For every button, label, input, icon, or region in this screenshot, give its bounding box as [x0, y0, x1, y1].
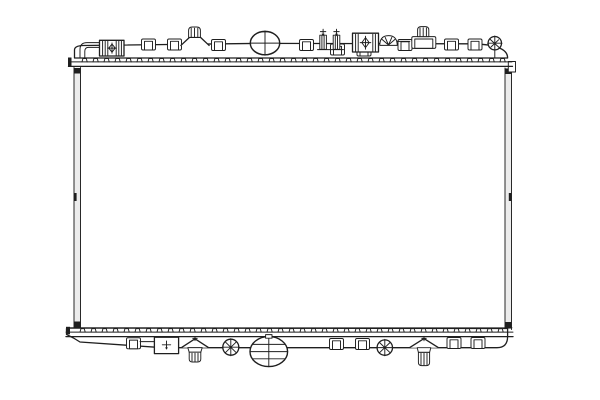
crimp-tooth: [258, 59, 263, 62]
crimp-tooth: [478, 59, 483, 62]
crimp-tooth: [467, 59, 472, 62]
crimp-tooth: [346, 59, 351, 62]
clip-tab: [212, 40, 226, 51]
bolt-cross: [320, 29, 325, 34]
left-plate-top-cap: [74, 68, 81, 74]
right-plate-mid-tick: [509, 193, 512, 201]
top-seam-left-hook: [68, 58, 72, 68]
crimp-tooth: [236, 59, 241, 62]
mounting-stud-left: [181, 27, 210, 46]
crimp-tooth: [324, 59, 329, 62]
crimp-tooth: [489, 59, 494, 62]
clip-tab-outer: [445, 39, 459, 50]
left-plate-bottom-cap: [74, 322, 81, 328]
crimp-tooth: [280, 59, 285, 62]
clip-tab-outer: [447, 338, 461, 349]
crimp-tooth: [335, 59, 340, 62]
crimp-tooth: [181, 59, 186, 62]
clip-tab: [168, 39, 182, 50]
top-crimp-teeth: [82, 59, 505, 62]
clip-tab: [445, 39, 459, 50]
clip-tab-outer: [212, 40, 226, 51]
mounting-stud-right: [412, 27, 436, 49]
crimp-tooth: [247, 59, 252, 62]
filler-cap: [250, 31, 279, 55]
bolt-cross: [334, 29, 339, 34]
crimp-tooth: [302, 59, 307, 62]
bolt-post: [333, 35, 340, 49]
stud-base-outer: [412, 37, 436, 49]
bracket-connector: [353, 33, 379, 52]
clip-tab-outer: [127, 338, 141, 349]
clip-tab-outer: [468, 39, 482, 50]
crimp-tooth: [412, 59, 417, 62]
crimp-tooth: [214, 59, 219, 62]
clip-tab: [356, 339, 370, 350]
pin-flange: [188, 348, 202, 353]
clip-tab: [468, 39, 482, 50]
crimp-tooth: [291, 59, 296, 62]
crimp-tooth: [434, 59, 439, 62]
crimp-tooth: [148, 59, 153, 62]
crimp-tooth: [192, 59, 197, 62]
crimp-tooth: [170, 59, 175, 62]
clip-tab-outer: [471, 338, 485, 349]
core-side-plates: [74, 68, 512, 330]
crimp-tooth: [379, 59, 384, 62]
crimp-tooth: [82, 59, 87, 62]
clip-tab-outer: [142, 39, 156, 50]
clip-tab: [330, 339, 344, 350]
crimp-tooth: [423, 59, 428, 62]
clip-tab-outer: [168, 39, 182, 50]
radiator-line-art: [0, 0, 600, 400]
outlet-top-notch: [266, 335, 272, 339]
crimp-tooth: [93, 59, 98, 62]
clip-tab-outer: [356, 339, 370, 350]
left-plate-mid-tick: [74, 193, 77, 201]
top-tank-outline: [75, 43, 508, 58]
crimp-tooth: [500, 59, 505, 62]
clip-tab: [471, 338, 485, 349]
pin-flange: [417, 348, 431, 353]
crimp-tooth: [225, 59, 230, 62]
crimp-tooth: [401, 59, 406, 62]
crimp-tooth: [269, 59, 274, 62]
crimp-tooth: [115, 59, 120, 62]
screw-plug-left: [222, 339, 239, 356]
crimp-tooth: [390, 59, 395, 62]
crimp-tooth: [104, 59, 109, 62]
crimp-tooth: [357, 59, 362, 62]
crimp-tooth: [203, 59, 208, 62]
crimp-tooth: [126, 59, 131, 62]
crimp-tooth: [137, 59, 142, 62]
bottom-seam-left-hook: [66, 327, 70, 335]
clip-tab: [300, 40, 314, 51]
screw-plug-right: [377, 339, 393, 355]
crimp-tooth: [313, 59, 318, 62]
clip-tab-outer: [330, 339, 344, 350]
radiator-illustration: [0, 0, 600, 400]
clip-tab-outer: [300, 40, 314, 51]
crimp-tooth: [159, 59, 164, 62]
crimp-tooth: [445, 59, 450, 62]
clip-tab: [142, 39, 156, 50]
crimp-tooth: [368, 59, 373, 62]
clip-tab: [447, 338, 461, 349]
clip-tab: [127, 338, 141, 349]
crimp-tooth: [456, 59, 461, 62]
stud-mound: [181, 37, 210, 45]
bolt-post: [320, 35, 327, 49]
